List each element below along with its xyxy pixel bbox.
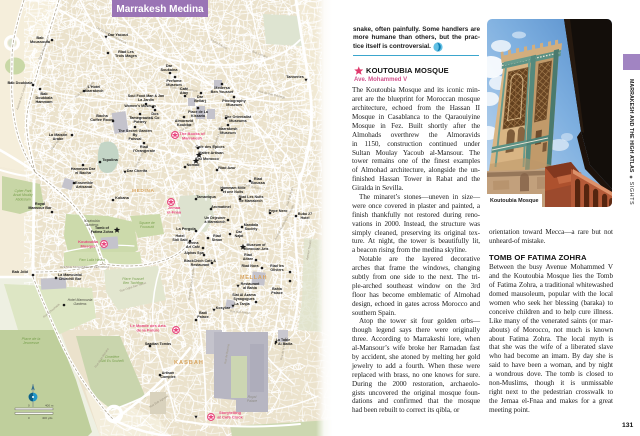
svg-text:Kokana: Kokana: [115, 196, 130, 200]
svg-text:Siwan: Siwan: [212, 238, 222, 242]
svg-text:Maître Artisan: Maître Artisan: [198, 151, 224, 155]
svg-text:& Co: & Co: [151, 116, 161, 120]
svg-text:Dar Cherifa: Dar Cherifa: [127, 169, 148, 173]
svg-text:Trois Mages: Trois Mages: [115, 54, 137, 58]
svg-text:Topolina: Topolina: [102, 158, 118, 162]
svg-text:Marrakesh: Marrakesh: [182, 135, 203, 140]
svg-text:à Marrakech: à Marrakech: [205, 220, 226, 224]
svg-text:Museum: Museum: [226, 103, 242, 107]
svg-text:Museum: Museum: [220, 131, 236, 135]
svg-text:Palace: Palace: [247, 399, 257, 403]
svg-text:Arabe: Arabe: [53, 137, 64, 141]
svg-text:Oliviers: Oliviers: [270, 268, 283, 272]
svg-text:Tamaviqua: Tamaviqua: [196, 195, 216, 199]
svg-text:Sidi Saïd: Sidi Saïd: [172, 238, 187, 242]
svg-text:La Tanjia: La Tanjia: [234, 302, 250, 306]
svg-text:AVENUE MOHAMED EL FETOUAKI: AVENUE MOHAMED EL FETOUAKI: [60, 265, 109, 269]
svg-text:Moussoufa: Moussoufa: [30, 40, 51, 44]
svg-text:Parc Lalla Hasna: Parc Lalla Hasna: [79, 258, 105, 262]
svg-text:Kosybar: Kosybar: [216, 306, 231, 310]
svg-text:Pepe Nero: Pepe Nero: [269, 209, 288, 213]
svg-text:400 yds: 400 yds: [42, 416, 53, 420]
svg-text:Mansour Bar: Mansour Bar: [28, 206, 52, 210]
svg-text:Ben Youssef: Ben Youssef: [211, 90, 234, 94]
svg-text:Soukaina: Soukaina: [161, 68, 179, 72]
svg-text:at Café Clock: at Café Clock: [217, 414, 243, 419]
svg-text:Boussa: Boussa: [251, 181, 266, 185]
svg-text:Women’s Museum: Women’s Museum: [124, 104, 155, 108]
svg-text:Jeunesse: Jeunesse: [22, 341, 39, 345]
svg-text:Ben Tachfine: Ben Tachfine: [123, 281, 143, 285]
svg-text:Atay: Atay: [180, 91, 189, 95]
svg-text:Dar Yacout: Dar Yacout: [108, 33, 129, 37]
svg-text:Marrakech: Marrakech: [85, 89, 105, 93]
svg-text:Hammam: Hammam: [35, 100, 53, 104]
svg-text:Tanneries: Tanneries: [286, 75, 304, 79]
svg-text:Saadian Tombs: Saadian Tombs: [145, 342, 171, 346]
svg-text:Churchill Bar: Churchill Bar: [59, 277, 82, 281]
svg-text:Sidi Es Souheili: Sidi Es Souheili: [100, 359, 124, 363]
svg-text:400 m: 400 m: [45, 404, 54, 408]
svg-text:Kissaria: Kissaria: [191, 114, 206, 118]
svg-text:Koubba: Koubba: [177, 123, 192, 127]
svg-text:Fatima Zohra: Fatima Zohra: [91, 230, 115, 234]
svg-text:Riad Azur: Riad Azur: [218, 166, 236, 170]
svg-text:KASBAH: KASBAH: [174, 360, 204, 366]
svg-text:Najat: Najat: [235, 234, 245, 238]
svg-text:Moroccan Arts: Moroccan Arts: [243, 247, 268, 251]
svg-text:Aromatinel: Aromatinel: [211, 205, 231, 209]
svg-text:Pottery: Pottery: [133, 120, 147, 124]
svg-text:Coffee Room: Coffee Room: [90, 118, 114, 122]
svg-text:Sisi Morocco: Sisi Morocco: [195, 157, 219, 161]
svg-text:l’Orangeraie: l’Orangeraie: [133, 149, 155, 153]
svg-text:Bab Jdid: Bab Jdid: [12, 270, 29, 274]
svg-text:Mosque: Mosque: [80, 243, 96, 248]
svg-text:Society: Society: [245, 227, 258, 231]
svg-text:Gardens: Gardens: [73, 302, 86, 306]
svg-text:Bab Doukkala: Bab Doukkala: [7, 81, 33, 85]
svg-text:Museums: Museums: [229, 119, 247, 123]
svg-text:Faissal: Faissal: [129, 137, 142, 141]
svg-text:Synagogues: Synagogues: [233, 297, 254, 301]
svg-text:Café des Épices: Café des Épices: [195, 144, 224, 149]
svg-text:MELLAH: MELLAH: [240, 275, 267, 281]
svg-text:Marrakesh Medina: Marrakesh Medina: [116, 4, 204, 15]
svg-text:Riad Nora: Riad Nora: [242, 264, 260, 268]
svg-text:Altare: Altare: [243, 257, 253, 261]
svg-text:Abdeslam: Abdeslam: [14, 197, 30, 201]
svg-text:de Marrakech: de Marrakech: [239, 199, 262, 203]
svg-text:et une Nuits: et une Nuits: [223, 190, 244, 194]
svg-text:Palace: Palace: [271, 291, 282, 295]
svg-text:La Pergola: La Pergola: [176, 227, 196, 231]
svg-text:MEDINA: MEDINA: [132, 188, 155, 194]
svg-text:La Jardin: La Jardin: [138, 98, 154, 102]
svg-text:Bellarj: Bellarj: [194, 99, 206, 103]
svg-text:el Bacha: el Bacha: [75, 171, 92, 175]
svg-text:Art Café: Art Café: [186, 245, 200, 249]
svg-text:Nomad: Nomad: [187, 163, 201, 167]
svg-text:Alphas Spa: Alphas Spa: [184, 251, 205, 255]
svg-text:de la Parure: de la Parure: [137, 327, 161, 332]
svg-text:Restaurant: Restaurant: [191, 263, 211, 267]
svg-text:Foucauld: Foucauld: [140, 225, 154, 229]
svg-text:Hotel: Hotel: [301, 216, 310, 220]
svg-text:Complex: Complex: [160, 375, 175, 379]
svg-text:al Bahia: al Bahia: [243, 286, 258, 290]
svg-text:Artisanal: Artisanal: [76, 185, 92, 189]
svg-text:Palace: Palace: [197, 315, 208, 319]
svg-text:▼ Al Badia: ▼ Al Badia: [274, 342, 294, 346]
svg-text:el-Fnaa: el-Fnaa: [167, 209, 182, 214]
